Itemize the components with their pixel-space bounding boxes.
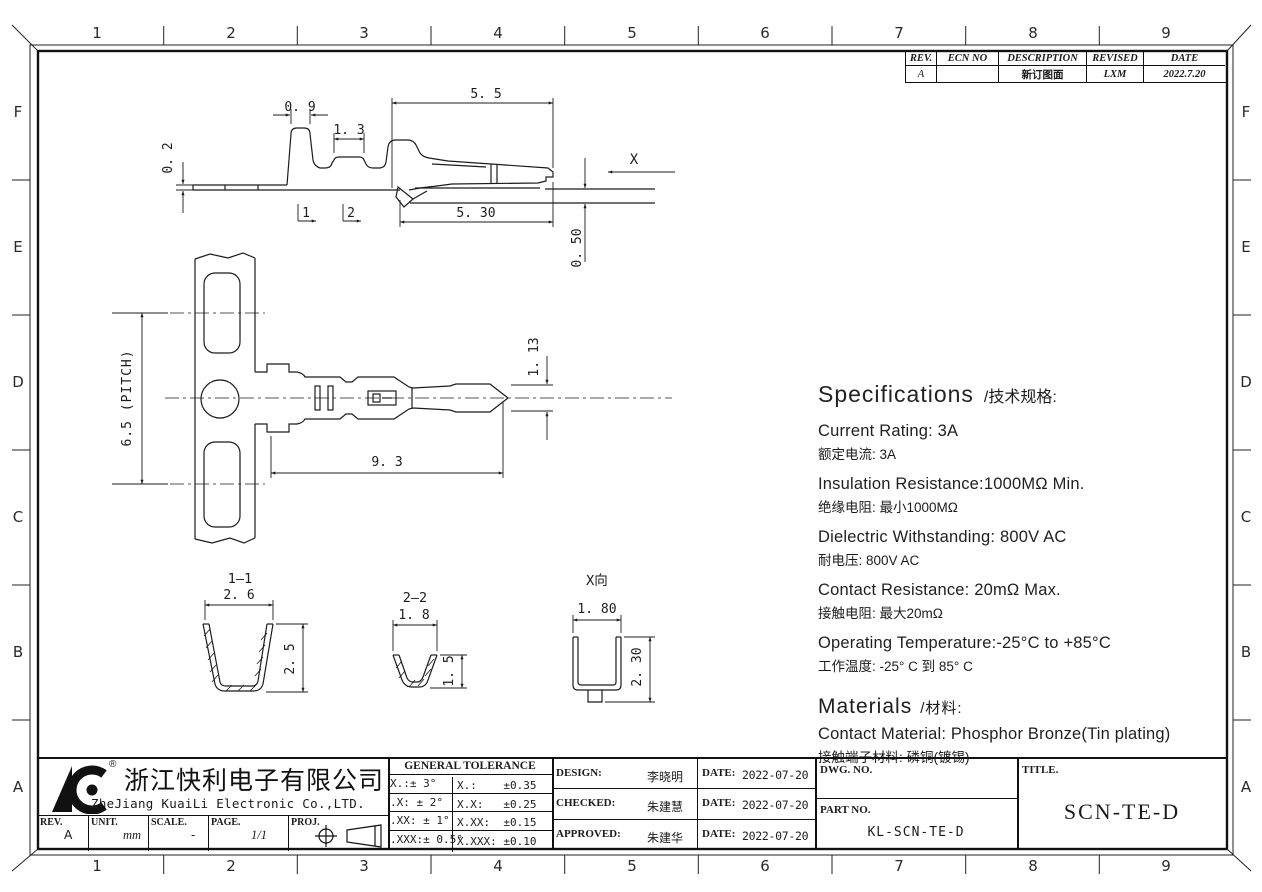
tolerance-table: GENERAL TOLERANCE X.:± 3° X.: ±0.35 .X: …: [388, 759, 552, 850]
tolerance-linear: X.XXX: ±0.10: [452, 833, 552, 852]
scale-label: SCALE.: [151, 817, 187, 828]
revision-table: REV. ECN NO DESCRIPTION REVISED DATE A 新…: [905, 51, 1228, 83]
materials-title-zh: /材料:: [920, 700, 962, 717]
grid-col-label: 7: [884, 857, 914, 875]
spec-current-rating-en: Current Rating: 3A: [818, 422, 1232, 441]
plan-centerlines: [165, 313, 672, 484]
tolerance-row: .XXX:± 0.5° X.XXX: ±0.10: [388, 831, 552, 850]
grid-col-label: 4: [483, 857, 513, 875]
grid-row-label: A: [9, 778, 27, 796]
rev-value: A: [906, 66, 936, 82]
specifications-title-zh: /技术规格:: [984, 389, 1057, 406]
grid-row-label: E: [1237, 238, 1255, 256]
page-label: PAGE.: [211, 817, 241, 828]
part-no-label: PART NO.: [820, 804, 871, 816]
tolerance-row: .XX: ± 1° X.XX: ±0.15: [388, 812, 552, 831]
spec-current-rating-zh: 额定电流: 3A: [818, 443, 1232, 463]
grid-col-label: 5: [617, 24, 647, 42]
title-label: TITLE.: [1022, 764, 1058, 776]
dwg-no-label: DWG. NO.: [820, 764, 872, 776]
design-name: 李晓明: [647, 768, 683, 785]
section-2-2-label: 2—2: [403, 590, 427, 606]
projection-symbol-icon: [315, 824, 387, 848]
x-view: [573, 637, 621, 702]
section-2-2: [393, 655, 437, 687]
date-col-header: DATE: [1143, 51, 1225, 66]
grid-col-label: 3: [349, 24, 379, 42]
tolerance-angle: .X: ± 2°: [390, 796, 443, 809]
terminal-plan-bottom: [255, 398, 508, 432]
approved-date-cell: DATE: 2022-07-20: [697, 820, 815, 850]
company-name-zh: 浙江快利电子有限公司: [124, 761, 384, 797]
materials-title-en: Materials: [818, 695, 912, 718]
rev-value: A: [64, 828, 72, 842]
grid-col-label: 1: [82, 857, 112, 875]
grid-col-label: 7: [884, 24, 914, 42]
dim-2-5: 2. 5: [283, 643, 298, 674]
dim-0-50: 0. 50: [570, 228, 585, 267]
company-name-en: ZheJiang KuaiLi Electronic Co.,LTD.: [91, 796, 365, 811]
grid-row-label: B: [1237, 643, 1255, 661]
specifications-title-en: Specifications: [818, 381, 974, 407]
dim-1-5: 1. 5: [442, 655, 457, 686]
ecn-col-header: ECN NO: [936, 51, 998, 66]
registered-mark: ®: [109, 759, 116, 770]
design-date: 2022-07-20: [742, 768, 808, 782]
design-date-cell: DATE: 2022-07-20: [697, 759, 815, 789]
grid-col-label: 6: [750, 24, 780, 42]
rev-cell: REV. A: [38, 816, 88, 851]
design-label: DESIGN:: [556, 767, 602, 779]
dim-2-6: 2. 6: [223, 588, 254, 603]
grid-row-label: A: [1237, 778, 1255, 796]
checked-date-cell: DATE: 2022-07-20: [697, 789, 815, 819]
side-view-dims: [176, 98, 675, 262]
section-1-1-label: 1—1: [228, 571, 252, 587]
dim-1-80: 1. 80: [577, 602, 616, 617]
specifications-title: Specifications/技术规格:: [818, 381, 1232, 408]
spec-operating-temp-en: Operating Temperature:-25°C to +85°C: [818, 634, 1232, 653]
checked-row: CHECKED: 朱建慧 DATE: 2022-07-20: [552, 789, 815, 819]
grid-row-label: D: [9, 373, 27, 391]
materials-title: Materials/材料:: [818, 695, 1232, 719]
x-view-label: X向: [586, 573, 608, 589]
dim-5-30: 5. 30: [456, 206, 495, 221]
section-mark-2: 2: [347, 206, 355, 221]
dwg-part-block: DWG. NO. PART NO. KL-SCN-TE-D: [815, 759, 1017, 850]
tolerance-header: GENERAL TOLERANCE: [388, 759, 552, 775]
design-row: DESIGN: 李晓明 DATE: 2022-07-20: [552, 759, 815, 789]
grid-col-label: 8: [1018, 24, 1048, 42]
date-label: DATE:: [702, 797, 735, 809]
checked-label: CHECKED:: [556, 797, 615, 809]
checked-name: 朱建慧: [647, 798, 683, 815]
unit-label: UNIT.: [91, 817, 118, 828]
part-no-value: KL-SCN-TE-D: [815, 825, 1017, 840]
grid-col-label: 5: [617, 857, 647, 875]
side-view: [193, 128, 655, 207]
dim-0-9: 0. 9: [284, 100, 315, 115]
rev-label: REV.: [40, 817, 62, 828]
grid-col-label: 2: [216, 857, 246, 875]
unit-cell: UNIT. mm: [88, 816, 148, 851]
projection-cell: PROJ.: [288, 816, 388, 851]
dwg-no-cell: DWG. NO.: [815, 759, 1017, 799]
spec-contact-resistance-en: Contact Resistance: 20mΩ Max.: [818, 581, 1232, 600]
rev-col-header: REV.: [906, 51, 936, 66]
dim-1-8: 1. 8: [398, 608, 429, 623]
spec-insulation-en: Insulation Resistance:1000MΩ Min.: [818, 475, 1232, 494]
grid-col-label: 9: [1151, 857, 1181, 875]
scale-cell: SCALE. -: [148, 816, 208, 851]
material-contact-en: Contact Material: Phosphor Bronze(Tin pl…: [818, 725, 1232, 744]
grid-row-label: E: [9, 238, 27, 256]
approved-label: APPROVED:: [556, 828, 621, 840]
approval-block: DESIGN: 李晓明 DATE: 2022-07-20 CHECKED: 朱建…: [552, 759, 815, 850]
date-label: DATE:: [702, 767, 735, 779]
scale-value: -: [191, 828, 195, 842]
dim-5-5: 5. 5: [470, 87, 501, 102]
grid-col-label: 3: [349, 857, 379, 875]
revised-col-header: REVISED: [1086, 51, 1143, 66]
grid-row-label: F: [9, 103, 27, 121]
grid-row-label: C: [9, 508, 27, 526]
section-1-1: [203, 624, 273, 691]
grid-col-label: 2: [216, 24, 246, 42]
tolerance-angle: .XX: ± 1°: [390, 814, 450, 827]
tolerance-row: X.:± 3° X.: ±0.35: [388, 775, 552, 794]
dim-1-13: 1. 13: [527, 337, 542, 376]
spec-dielectric-zh: 耐电压: 800V AC: [818, 549, 1232, 569]
date-label: DATE:: [702, 828, 735, 840]
date-value: 2022.7.20: [1143, 66, 1225, 82]
terminal-profile: [287, 128, 553, 190]
specifications-block: Specifications/技术规格: Current Rating: 3A …: [818, 381, 1232, 766]
terminal-plan-top: [255, 364, 508, 398]
title-block-subrow: REV. A UNIT. mm SCALE. - PAGE. 1/1 PROJ.: [38, 815, 388, 850]
grid-col-label: 1: [82, 24, 112, 42]
tolerance-row: .X: ± 2° X.X: ±0.25: [388, 794, 552, 813]
unit-value: mm: [123, 828, 141, 843]
spec-dielectric-en: Dielectric Withstanding: 800V AC: [818, 528, 1232, 547]
grid-col-label: 6: [750, 857, 780, 875]
checked-date: 2022-07-20: [742, 798, 808, 812]
revised-value: LXM: [1086, 66, 1143, 82]
drawing-title-value: SCN-TE-D: [1017, 799, 1227, 825]
grid-row-label: C: [1237, 508, 1255, 526]
description-value: 新订图面: [998, 66, 1086, 82]
dim-0-2: 0. 2: [161, 142, 176, 173]
grid-row-label: B: [9, 643, 27, 661]
grid-col-label: 4: [483, 24, 513, 42]
spec-contact-resistance-zh: 接触电阻: 最大20mΩ: [818, 602, 1232, 622]
grid-col-label: 8: [1018, 857, 1048, 875]
approved-row: APPROVED: 朱建华 DATE: 2022-07-20: [552, 820, 815, 850]
page-cell: PAGE. 1/1: [208, 816, 288, 851]
description-col-header: DESCRIPTION: [998, 51, 1086, 66]
spec-operating-temp-zh: 工作温度: -25° C 到 85° C: [818, 655, 1232, 675]
grid-col-label: 9: [1151, 24, 1181, 42]
grid-row-label: D: [1237, 373, 1255, 391]
tolerance-angle: X.:± 3°: [390, 777, 436, 790]
company-cell: ® 浙江快利电子有限公司 ZheJiang KuaiLi Electronic …: [38, 759, 388, 850]
drawing-title-cell: TITLE. SCN-TE-D: [1017, 759, 1227, 850]
dim-2-30: 2. 30: [630, 647, 645, 686]
approved-date: 2022-07-20: [742, 829, 808, 843]
ecn-value: [936, 66, 998, 82]
dim-1-3: 1. 3: [333, 123, 364, 138]
dim-pitch: 6.5 (PITCH): [120, 349, 135, 446]
section-mark-1: 1: [302, 206, 310, 221]
approved-name: 朱建华: [647, 829, 683, 846]
x-direction-label: X: [630, 152, 639, 168]
dim-9-3: 9. 3: [371, 455, 402, 470]
page-value: 1/1: [251, 828, 267, 843]
spec-insulation-zh: 绝缘电阻: 最小1000MΩ: [818, 496, 1232, 516]
grid-row-label: F: [1237, 103, 1255, 121]
title-block: ® 浙江快利电子有限公司 ZheJiang KuaiLi Electronic …: [38, 757, 1227, 850]
